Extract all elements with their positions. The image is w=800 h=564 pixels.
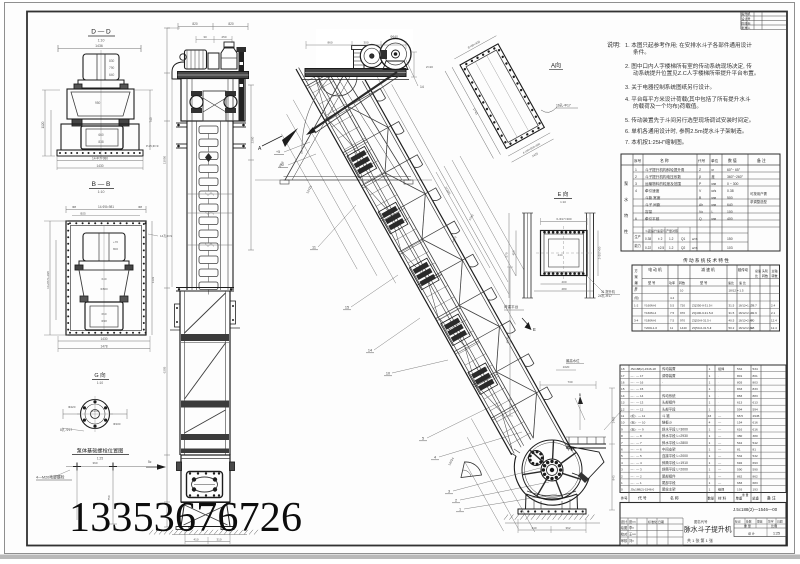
svg-text:801: 801 bbox=[753, 374, 758, 378]
svg-text:Φ38: Φ38 bbox=[101, 319, 107, 323]
svg-text:签字: 签字 bbox=[768, 520, 774, 524]
svg-text:— · — 5: — · — 5 bbox=[631, 454, 642, 458]
svg-text:43: 43 bbox=[708, 414, 712, 418]
svg-text:连接平段 L=2000: 连接平段 L=2000 bbox=[662, 453, 688, 458]
svg-text:4: 4 bbox=[621, 461, 623, 465]
svg-text:1: 1 bbox=[709, 434, 711, 438]
svg-text:300: 300 bbox=[363, 41, 368, 45]
svg-text:68.5: 68.5 bbox=[737, 414, 743, 418]
svg-text:总速: 总速 bbox=[755, 268, 761, 273]
svg-text:590: 590 bbox=[753, 468, 758, 472]
svg-text:A向: A向 bbox=[551, 62, 561, 70]
svg-text:日期: 日期 bbox=[658, 519, 664, 524]
svg-text:传 动 系 统 技 术 特 性: 传 动 系 统 技 术 特 性 bbox=[683, 257, 729, 264]
svg-text:1120: 1120 bbox=[41, 121, 45, 128]
svg-text:1430: 1430 bbox=[96, 164, 103, 168]
svg-text:荷重平台: 荷重平台 bbox=[504, 304, 519, 309]
svg-text:1-2: 1-2 bbox=[634, 303, 639, 307]
svg-text:单位: 单位 bbox=[711, 158, 719, 163]
svg-text:450: 450 bbox=[512, 250, 516, 255]
svg-text:头部组件: 头部组件 bbox=[662, 400, 676, 405]
svg-text:传动装置: 传动装置 bbox=[662, 366, 676, 371]
svg-text:Φ420: Φ420 bbox=[68, 405, 76, 409]
svg-text:14: 14 bbox=[420, 85, 424, 89]
svg-text:803: 803 bbox=[753, 381, 758, 385]
svg-text:Ah: Ah bbox=[699, 203, 703, 207]
svg-text:特: 特 bbox=[624, 212, 628, 218]
svg-text:360°~260°: 360°~260° bbox=[727, 175, 744, 179]
svg-text:17: 17 bbox=[621, 374, 625, 378]
svg-text:求调整选型: 求调整选型 bbox=[750, 199, 768, 204]
svg-text:— · — 15: — · — 15 bbox=[631, 387, 644, 391]
svg-text:组焊: 组焊 bbox=[718, 487, 724, 492]
svg-text:362: 362 bbox=[565, 526, 570, 530]
svg-text:250: 250 bbox=[221, 35, 226, 39]
svg-text:3. 关于电器控制系统图纸另行设计。: 3. 关于电器控制系统图纸另行设计。 bbox=[625, 83, 715, 91]
svg-text:м: м bbox=[712, 168, 714, 172]
svg-text:— · — 7: — · — 7 bbox=[631, 441, 642, 445]
svg-text:更改: 更改 bbox=[757, 520, 763, 524]
svg-text:名 称: 名 称 bbox=[670, 496, 679, 501]
svg-text:1440: 1440 bbox=[680, 326, 687, 330]
svg-text:14-Φ8=981: 14-Φ8=981 bbox=[98, 205, 114, 209]
svg-text:— · — 12: — · — 12 bbox=[631, 407, 644, 411]
svg-text:5: 5 bbox=[621, 454, 623, 458]
svg-text:2. 图中口内人字楼梯所有室的传动系统现场决定, 传: 2. 图中口内人字楼梯所有室的传动系统现场决定, 传 bbox=[625, 62, 752, 70]
svg-text:883: 883 bbox=[737, 394, 742, 398]
svg-text:ZQ400-Ⅱ-31.5-Ⅱ: ZQ400-Ⅱ-31.5-Ⅱ bbox=[692, 311, 713, 315]
svg-text:801: 801 bbox=[737, 374, 742, 378]
svg-text:尾部组件: 尾部组件 bbox=[662, 473, 676, 478]
svg-text:设计号: 设计号 bbox=[742, 16, 751, 21]
svg-text:阶段标: 阶段标 bbox=[742, 20, 751, 25]
svg-text:说明:: 说明: bbox=[607, 41, 621, 49]
svg-text:534: 534 bbox=[737, 367, 742, 371]
svg-text:转数: 转数 bbox=[762, 273, 768, 278]
svg-text:4: 4 bbox=[709, 421, 711, 425]
svg-text:最高水位: 最高水位 bbox=[566, 358, 580, 363]
svg-text:5: 5 bbox=[422, 437, 424, 441]
svg-text:100: 100 bbox=[727, 210, 733, 214]
svg-text:11: 11 bbox=[621, 414, 624, 418]
svg-text:·: · bbox=[718, 381, 719, 385]
svg-text:备 注: 备 注 bbox=[757, 158, 766, 163]
svg-text:683: 683 bbox=[753, 481, 758, 485]
svg-text:8孔-Φ17: 8孔-Φ17 bbox=[60, 427, 72, 432]
svg-text:480: 480 bbox=[561, 287, 566, 291]
svg-text:E 向: E 向 bbox=[558, 190, 569, 198]
svg-text:1.2: 1.2 bbox=[669, 246, 674, 250]
svg-text:42.9: 42.9 bbox=[751, 311, 757, 315]
svg-text:(标) · — 10: (标) · — 10 bbox=[631, 420, 646, 425]
svg-text:王××: 王×× bbox=[629, 533, 636, 537]
svg-text:660: 660 bbox=[101, 312, 106, 316]
svg-text:883: 883 bbox=[753, 394, 758, 398]
svg-text:660: 660 bbox=[98, 133, 104, 137]
svg-text:5. 传动装置先于斗间另行选型现场调试安装时间定。: 5. 传动装置先于斗间另行选型现场调试安装时间定。 bbox=[625, 116, 754, 124]
svg-text:1: 1 bbox=[709, 427, 711, 431]
svg-text:380: 380 bbox=[737, 434, 742, 438]
svg-text:3: 3 bbox=[621, 468, 623, 472]
svg-text:31.5: 31.5 bbox=[729, 311, 735, 315]
svg-text:12.4: 12.4 bbox=[771, 326, 777, 330]
svg-text:1: 1 bbox=[709, 468, 711, 472]
svg-text:名 称: 名 称 bbox=[660, 158, 669, 163]
svg-text:4: 4 bbox=[635, 189, 637, 193]
svg-text:1: 1 bbox=[621, 481, 623, 485]
svg-text:14-Φ7=980: 14-Φ7=980 bbox=[92, 157, 108, 161]
svg-text:613: 613 bbox=[737, 401, 742, 405]
svg-text:745: 745 bbox=[149, 117, 153, 123]
svg-text:616: 616 bbox=[753, 421, 758, 425]
svg-text:7. 本机按1:25H″缩制图。: 7. 本机按1:25H″缩制图。 bbox=[625, 138, 687, 146]
svg-text:绘图: 绘图 bbox=[621, 525, 627, 530]
svg-text:4500: 4500 bbox=[506, 336, 510, 343]
svg-text:380: 380 bbox=[753, 434, 758, 438]
svg-text:斜水平段 L=3000: 斜水平段 L=3000 bbox=[662, 426, 688, 431]
svg-text:1: 1 bbox=[709, 461, 711, 465]
svg-text:мм: мм bbox=[712, 217, 716, 221]
svg-text:18: 18 bbox=[621, 367, 625, 371]
svg-text:70: 70 bbox=[751, 319, 755, 323]
svg-text:Vo: Vo bbox=[699, 210, 703, 214]
svg-text:2-Φ17×50: 2-Φ17×50 bbox=[598, 246, 602, 259]
svg-text:48: 48 bbox=[751, 326, 755, 330]
svg-text:0.38: 0.38 bbox=[645, 237, 651, 241]
svg-text:1: 1 bbox=[709, 474, 711, 478]
svg-text:中间支架: 中间支架 bbox=[662, 447, 676, 452]
svg-text:审核: 审核 bbox=[621, 538, 628, 543]
svg-text:头部平段: 头部平段 bbox=[662, 406, 676, 411]
svg-text:16孔-Φ17: 16孔-Φ17 bbox=[556, 103, 571, 108]
svg-text:校对: 校对 bbox=[621, 532, 628, 537]
svg-text:10: 10 bbox=[680, 289, 684, 293]
svg-text:·: · bbox=[718, 394, 719, 398]
svg-text:(标) · — 11: (标) · — 11 bbox=[631, 413, 646, 418]
svg-text:Y180M-6: Y180M-6 bbox=[644, 319, 657, 323]
svg-text:— · — 17: — · — 17 bbox=[631, 374, 644, 378]
svg-text:— · — 3: — · — 3 bbox=[631, 468, 642, 472]
svg-text:李×: 李× bbox=[629, 525, 634, 530]
svg-text:4. 平台每平方米设计荷载(其中包括了所有提升水斗: 4. 平台每平方米设计荷载(其中包括了所有提升水斗 bbox=[625, 95, 751, 103]
svg-text:的载荷及一个均布)荷载值。: 的载荷及一个均布)荷载值。 bbox=[633, 102, 702, 110]
svg-text:方: 方 bbox=[635, 268, 638, 273]
svg-text:— · — 8: — · — 8 bbox=[631, 434, 642, 438]
svg-text:Φ260: Φ260 bbox=[92, 409, 99, 413]
svg-text:链板斗: 链板斗 bbox=[662, 420, 673, 425]
svg-text:15: 15 bbox=[621, 387, 625, 391]
svg-text:脉水斗子提升机: 脉水斗子提升机 bbox=[684, 525, 732, 534]
svg-text:共 1 张 第 1 张: 共 1 张 第 1 张 bbox=[687, 537, 713, 543]
svg-text:张××: 张×× bbox=[629, 519, 636, 524]
svg-text:1: 1 bbox=[709, 407, 711, 411]
svg-text:7.5: 7.5 bbox=[670, 319, 675, 323]
svg-text:594: 594 bbox=[753, 407, 758, 411]
svg-text:833: 833 bbox=[753, 387, 758, 391]
svg-text:+5: +5 bbox=[276, 150, 280, 154]
svg-text:3-4: 3-4 bbox=[634, 319, 639, 323]
svg-text:6. 单机各通用设计时, 参照2.5m提水斗子架制造。: 6. 单机各通用设计时, 参照2.5m提水斗子架制造。 bbox=[625, 127, 747, 135]
svg-text:950: 950 bbox=[95, 101, 101, 105]
svg-text:1:10: 1:10 bbox=[98, 39, 105, 43]
svg-text:1: 1 bbox=[709, 454, 711, 458]
svg-text:Q1: Q1 bbox=[681, 237, 685, 241]
svg-text:1: 1 bbox=[709, 394, 711, 398]
svg-text:— · — 16: — · — 16 bbox=[631, 381, 644, 385]
svg-text:ZQ50-Ⅱ-31.5-Ⅰ: ZQ50-Ⅱ-31.5-Ⅰ bbox=[692, 319, 711, 323]
svg-text:1:10: 1:10 bbox=[98, 190, 105, 194]
svg-text:1:25: 1:25 bbox=[773, 532, 780, 536]
svg-text:处数: 处数 bbox=[746, 520, 752, 524]
svg-text:0.22: 0.22 bbox=[645, 246, 651, 250]
svg-text:±2.5: ±2.5 bbox=[658, 246, 664, 250]
svg-text:838: 838 bbox=[98, 140, 104, 144]
svg-text:Y200L1-6: Y200L1-6 bbox=[644, 326, 657, 330]
svg-text:50.2: 50.2 bbox=[729, 326, 735, 330]
svg-text:1436: 1436 bbox=[95, 44, 103, 48]
svg-text:14+86.5+938: 14+86.5+938 bbox=[46, 271, 50, 289]
svg-text:减 速 机: 减 速 机 bbox=[701, 267, 715, 272]
svg-text:м³/h: м³/h bbox=[692, 246, 698, 250]
svg-text:640: 640 bbox=[727, 203, 733, 207]
svg-text:斜水平段 L=2800: 斜水平段 L=2800 bbox=[662, 440, 688, 445]
svg-text:转数: 转数 bbox=[679, 280, 685, 285]
svg-text:重 量: 重 量 bbox=[744, 523, 751, 528]
svg-text:14: 14 bbox=[368, 349, 372, 353]
svg-text:刘×: 刘× bbox=[629, 538, 634, 543]
svg-text:2945: 2945 bbox=[753, 414, 760, 418]
svg-text:批准人: 批准人 bbox=[742, 25, 751, 30]
svg-text:比例: 比例 bbox=[771, 523, 777, 528]
svg-text:组焊: 组焊 bbox=[718, 366, 724, 371]
svg-text:件号: 件号 bbox=[621, 496, 628, 501]
svg-text:4—M20地脚螺栓: 4—M20地脚螺栓 bbox=[36, 475, 65, 480]
svg-text:532: 532 bbox=[753, 454, 758, 458]
svg-text:·: · bbox=[718, 387, 719, 391]
svg-text:444: 444 bbox=[557, 253, 562, 257]
svg-text:616: 616 bbox=[737, 427, 742, 431]
svg-text:运输物料的粒度及范围: 运输物料的粒度及范围 bbox=[645, 181, 681, 186]
svg-text:Φ25: Φ25 bbox=[80, 212, 86, 216]
svg-text:1: 1 bbox=[459, 508, 461, 512]
svg-text:1:10: 1:10 bbox=[560, 200, 566, 204]
svg-text:1430: 1430 bbox=[100, 337, 107, 341]
svg-text:мм: мм bbox=[712, 203, 716, 207]
svg-text:图名代号: 图名代号 bbox=[694, 519, 708, 524]
svg-text:速 比: 速 比 bbox=[739, 280, 746, 285]
svg-text:31 提升机: 31 提升机 bbox=[601, 289, 616, 294]
svg-text:传动系统: 传动系统 bbox=[662, 393, 676, 398]
svg-text:15: 15 bbox=[345, 306, 349, 310]
svg-text:150: 150 bbox=[727, 237, 733, 241]
svg-text:590: 590 bbox=[737, 468, 742, 472]
svg-text:532: 532 bbox=[737, 454, 742, 458]
svg-text:970: 970 bbox=[680, 319, 685, 323]
svg-text:生产: 生产 bbox=[635, 234, 641, 239]
svg-text:6: 6 bbox=[621, 448, 623, 452]
svg-text:Φ8: Φ8 bbox=[72, 205, 76, 209]
svg-text:尾轮主架: 尾轮主架 bbox=[662, 487, 676, 492]
svg-text:β: β bbox=[699, 175, 701, 179]
svg-text:5.5: 5.5 bbox=[670, 303, 675, 307]
svg-text:0 ~ 300: 0 ~ 300 bbox=[727, 182, 739, 186]
svg-text:1:10: 1:10 bbox=[97, 381, 103, 385]
svg-text:Φ640: Φ640 bbox=[390, 35, 398, 39]
svg-text:Q: Q bbox=[699, 217, 702, 221]
svg-text:594: 594 bbox=[737, 407, 742, 411]
svg-text:斗子提升机构斜轮提升角: 斗子提升机构斜轮提升角 bbox=[645, 167, 685, 172]
svg-text:103: 103 bbox=[727, 246, 733, 250]
svg-text:7.5: 7.5 bbox=[670, 311, 675, 315]
svg-text:860: 860 bbox=[327, 41, 332, 45]
svg-text:500: 500 bbox=[727, 196, 733, 200]
svg-text:0: 0 bbox=[621, 488, 623, 492]
svg-text:40.5: 40.5 bbox=[729, 319, 735, 323]
svg-text:1: 1 bbox=[635, 168, 637, 172]
svg-text:调带装置: 调带装置 bbox=[662, 373, 676, 378]
svg-text:斗子 间距: 斗子 间距 bbox=[645, 202, 661, 207]
svg-text:10: 10 bbox=[386, 372, 390, 376]
svg-text:6-Φ17=300: 6-Φ17=300 bbox=[556, 217, 571, 221]
svg-text:18/12 = 1.5: 18/12 = 1.5 bbox=[729, 289, 744, 293]
svg-text:2.4: 2.4 bbox=[771, 303, 776, 307]
svg-text:мм: мм bbox=[712, 196, 716, 200]
svg-text:8: 8 bbox=[621, 434, 623, 438]
svg-text:Φ8: Φ8 bbox=[138, 205, 142, 209]
svg-text:牵引平链: 牵引平链 bbox=[645, 216, 660, 221]
svg-text:标准化: 标准化 bbox=[648, 519, 657, 524]
svg-text:— · — 2: — · — 2 bbox=[631, 474, 642, 478]
svg-text:693: 693 bbox=[753, 461, 758, 465]
svg-text:+70: +70 bbox=[113, 240, 118, 244]
svg-text:G 向: G 向 bbox=[94, 371, 105, 379]
svg-text:电 动 机: 电 动 机 bbox=[648, 267, 662, 272]
svg-text:数 值: 数 值 bbox=[728, 158, 737, 163]
svg-text:30: 30 bbox=[203, 35, 207, 39]
svg-text:683: 683 bbox=[737, 481, 742, 485]
svg-text:功率: 功率 bbox=[669, 280, 675, 285]
svg-text:型 号: 型 号 bbox=[648, 280, 655, 285]
svg-text:6205: 6205 bbox=[163, 366, 167, 373]
svg-text:943: 943 bbox=[612, 475, 616, 480]
svg-text:мм: мм bbox=[712, 182, 716, 186]
svg-text:泵体基础螺栓位置图: 泵体基础螺栓位置图 bbox=[77, 447, 124, 455]
svg-text:比: 比 bbox=[755, 273, 758, 278]
svg-text:牵引速度: 牵引速度 bbox=[645, 188, 660, 193]
svg-text:泵: 泵 bbox=[624, 181, 628, 186]
svg-text:Y160M-6: Y160M-6 bbox=[644, 303, 657, 307]
svg-text:1: 1 bbox=[709, 381, 711, 385]
svg-text:13: 13 bbox=[621, 401, 625, 405]
svg-text:970: 970 bbox=[680, 311, 685, 315]
svg-text:D — D: D — D bbox=[91, 29, 111, 36]
svg-text:9: 9 bbox=[621, 427, 623, 431]
svg-text:2: 2 bbox=[455, 499, 457, 503]
svg-text:重 量: 重 量 bbox=[742, 493, 749, 497]
svg-text:数量: 数量 bbox=[708, 496, 715, 501]
svg-text:2260: 2260 bbox=[251, 136, 255, 143]
svg-text:0.38: 0.38 bbox=[727, 189, 734, 193]
svg-text:1. 本图只起参考作用; 在安排水斗子各部件通用设计: 1. 本图只起参考作用; 在安排水斗子各部件通用设计 bbox=[625, 41, 752, 49]
svg-text:·: · bbox=[718, 401, 719, 405]
svg-text:1.2: 1.2 bbox=[669, 237, 674, 241]
svg-text:设 计: 设 计 bbox=[748, 531, 755, 536]
svg-text:L: L bbox=[712, 210, 714, 214]
svg-text:Φ330: Φ330 bbox=[113, 422, 121, 426]
svg-text:·: · bbox=[718, 407, 719, 411]
svg-text:ZQ50-Ⅱ-31.5-Ⅱ: ZQ50-Ⅱ-31.5-Ⅱ bbox=[692, 326, 712, 330]
svg-text:序号: 序号 bbox=[634, 158, 642, 163]
svg-text:斗距 宽度: 斗距 宽度 bbox=[645, 195, 661, 200]
svg-text:1: 1 bbox=[709, 448, 711, 452]
svg-text:720: 720 bbox=[680, 303, 685, 307]
svg-text:标记: 标记 bbox=[735, 520, 741, 524]
svg-text:Φ800: Φ800 bbox=[100, 287, 108, 291]
svg-text:730: 730 bbox=[567, 380, 572, 384]
svg-text:能力: 能力 bbox=[635, 243, 641, 248]
svg-text:81: 81 bbox=[737, 448, 741, 452]
svg-text:790: 790 bbox=[109, 66, 115, 70]
svg-text:(标) · — 9: (标) · — 9 bbox=[631, 426, 644, 431]
svg-text:154: 154 bbox=[737, 421, 742, 425]
svg-text:1: 1 bbox=[709, 441, 711, 445]
svg-text:代 号: 代 号 bbox=[638, 496, 647, 501]
svg-text:Y160M-4: Y160M-4 bbox=[644, 311, 657, 315]
svg-text:616: 616 bbox=[753, 427, 758, 431]
svg-text:400: 400 bbox=[727, 217, 733, 221]
svg-text:尾部平段: 尾部平段 bbox=[662, 480, 676, 485]
svg-text:— · — 14: — · — 14 bbox=[631, 394, 644, 398]
svg-text:60°~ 65°: 60°~ 65° bbox=[727, 168, 741, 172]
svg-text:833: 833 bbox=[737, 387, 742, 391]
svg-text:1478: 1478 bbox=[100, 345, 107, 349]
svg-text:800: 800 bbox=[113, 247, 118, 251]
svg-text:斜水平段 L=2930: 斜水平段 L=2930 bbox=[662, 433, 688, 438]
svg-text:— · — 4: — · — 4 bbox=[631, 461, 642, 465]
svg-text:692: 692 bbox=[737, 461, 742, 465]
svg-text:4.4: 4.4 bbox=[670, 296, 675, 300]
svg-text:斜筒平段 L=1910: 斜筒平段 L=1910 bbox=[662, 460, 688, 465]
svg-text:803: 803 bbox=[737, 381, 742, 385]
svg-text:2: 2 bbox=[635, 175, 637, 179]
svg-text:型 号: 型 号 bbox=[700, 280, 707, 285]
svg-text:P.25,Φ=9: P.25,Φ=9 bbox=[146, 144, 159, 148]
svg-text:4: 4 bbox=[434, 456, 436, 460]
svg-text:链传动: 链传动 bbox=[738, 267, 749, 272]
svg-text:— · — 6: — · — 6 bbox=[631, 448, 642, 452]
svg-text:斗子提升机构电压系数: 斗子提升机构电压系数 bbox=[645, 174, 681, 179]
svg-text:— · — 1: — · — 1 bbox=[631, 481, 642, 485]
svg-text:± 2: ± 2 bbox=[658, 237, 663, 241]
svg-text:材 料: 材 料 bbox=[718, 496, 727, 501]
svg-text:ZQ350-Ⅱ-31.5-Ⅰ: ZQ350-Ⅱ-31.5-Ⅰ bbox=[692, 303, 712, 307]
svg-text:J.5c188(2)—1546—00: J.5c188(2)—1546—00 bbox=[733, 507, 778, 512]
svg-text:11: 11 bbox=[670, 326, 673, 330]
svg-text:主轴: 主轴 bbox=[772, 268, 778, 273]
svg-text:10: 10 bbox=[621, 421, 625, 425]
svg-text:容量: 容量 bbox=[645, 209, 653, 214]
svg-text:820: 820 bbox=[228, 22, 234, 26]
svg-text:13353676726: 13353676726 bbox=[69, 495, 302, 541]
svg-text:193: 193 bbox=[737, 488, 742, 492]
svg-text:7: 7 bbox=[621, 441, 623, 445]
svg-text:640: 640 bbox=[109, 73, 115, 77]
svg-text:斜筒平段 L=2000: 斜筒平段 L=2000 bbox=[662, 467, 688, 472]
svg-text:1465: 1465 bbox=[612, 416, 616, 423]
svg-text:13050: 13050 bbox=[163, 155, 167, 164]
svg-text:— · — 13: — · — 13 bbox=[631, 401, 644, 405]
svg-text:5c: 5c bbox=[148, 460, 152, 464]
